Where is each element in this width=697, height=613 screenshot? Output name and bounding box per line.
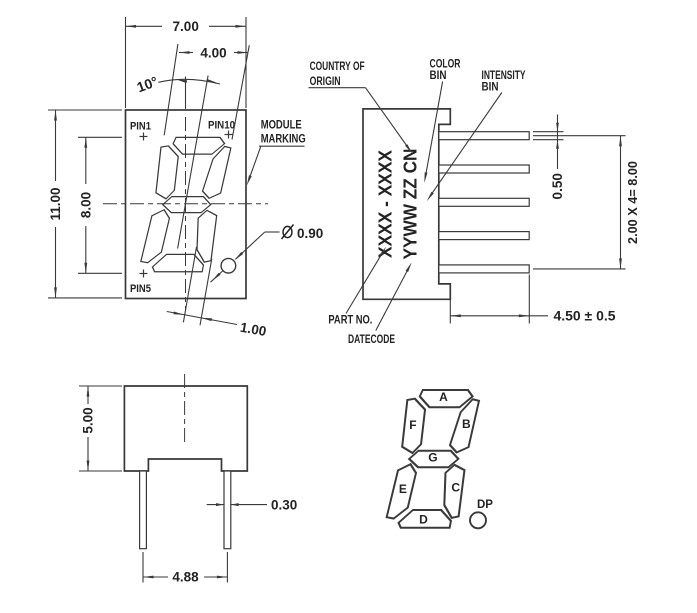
svg-text:BIN: BIN: [482, 80, 499, 94]
svg-text:PIN10: PIN10: [208, 120, 235, 132]
svg-text:PIN1: PIN1: [130, 121, 151, 133]
svg-text:4.00: 4.00: [200, 45, 226, 60]
svg-text:8.00: 8.00: [78, 192, 93, 218]
svg-text:0.30: 0.30: [271, 498, 297, 513]
svg-text:COUNTRY OF: COUNTRY OF: [310, 59, 365, 73]
svg-text:7.00: 7.00: [173, 19, 199, 34]
svg-text:C: C: [451, 481, 460, 495]
svg-text:11.00: 11.00: [48, 187, 63, 220]
svg-text:B: B: [462, 417, 471, 431]
svg-text:5.00: 5.00: [81, 407, 96, 433]
svg-text:BIN: BIN: [430, 68, 447, 82]
svg-text:4.88: 4.88: [172, 570, 199, 585]
svg-text:0.50: 0.50: [550, 173, 565, 199]
svg-text:DATECODE: DATECODE: [348, 332, 395, 346]
svg-text:0.90: 0.90: [297, 226, 323, 241]
svg-text:MARKING: MARKING: [261, 132, 306, 146]
svg-text:XXXX - XXXX: XXXX - XXXX: [375, 149, 396, 258]
svg-text:2.00 X 4= 8.00: 2.00 X 4= 8.00: [625, 161, 640, 244]
svg-text:4.50 ± 0.5: 4.50 ± 0.5: [554, 309, 617, 324]
svg-text:A: A: [439, 390, 448, 404]
svg-text:E: E: [399, 482, 407, 496]
svg-text:MODULE: MODULE: [261, 117, 302, 131]
svg-text:ORIGIN: ORIGIN: [310, 74, 341, 88]
svg-text:10°: 10°: [135, 73, 160, 95]
svg-text:YYWW ZZ CN: YYWW ZZ CN: [400, 149, 421, 260]
svg-text:D: D: [419, 513, 428, 527]
svg-text:1.00: 1.00: [239, 320, 267, 339]
svg-text:G: G: [428, 451, 437, 465]
svg-text:DP: DP: [477, 499, 493, 511]
svg-text:PIN5: PIN5: [130, 283, 151, 295]
svg-text:F: F: [409, 418, 416, 432]
svg-text:PART NO.: PART NO.: [328, 313, 372, 327]
